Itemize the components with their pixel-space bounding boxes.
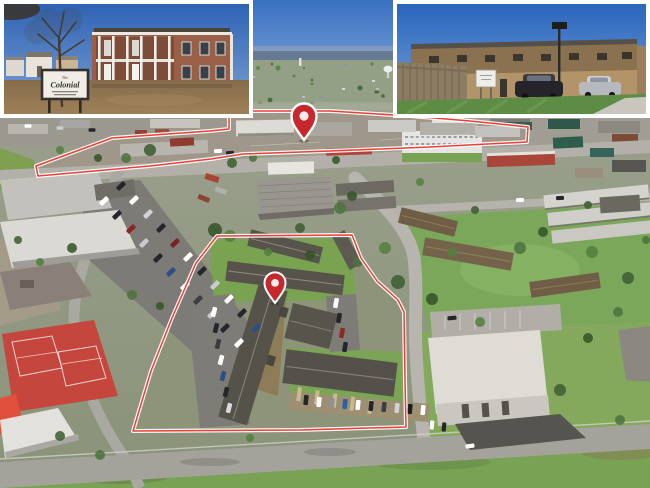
colonial-photo: The Colonial bbox=[0, 0, 249, 114]
sign-text-colonial: Colonial bbox=[50, 81, 80, 90]
inset-photo-left: The Colonial bbox=[0, 0, 253, 118]
aerial-listing-photo: The Colonial bbox=[0, 0, 650, 488]
inset-photo-right bbox=[393, 0, 650, 118]
colonial-building bbox=[92, 28, 233, 86]
aerial-scene: The Colonial bbox=[0, 0, 650, 488]
brick-building-photo bbox=[397, 4, 646, 114]
sign-text-the: The bbox=[62, 75, 68, 80]
